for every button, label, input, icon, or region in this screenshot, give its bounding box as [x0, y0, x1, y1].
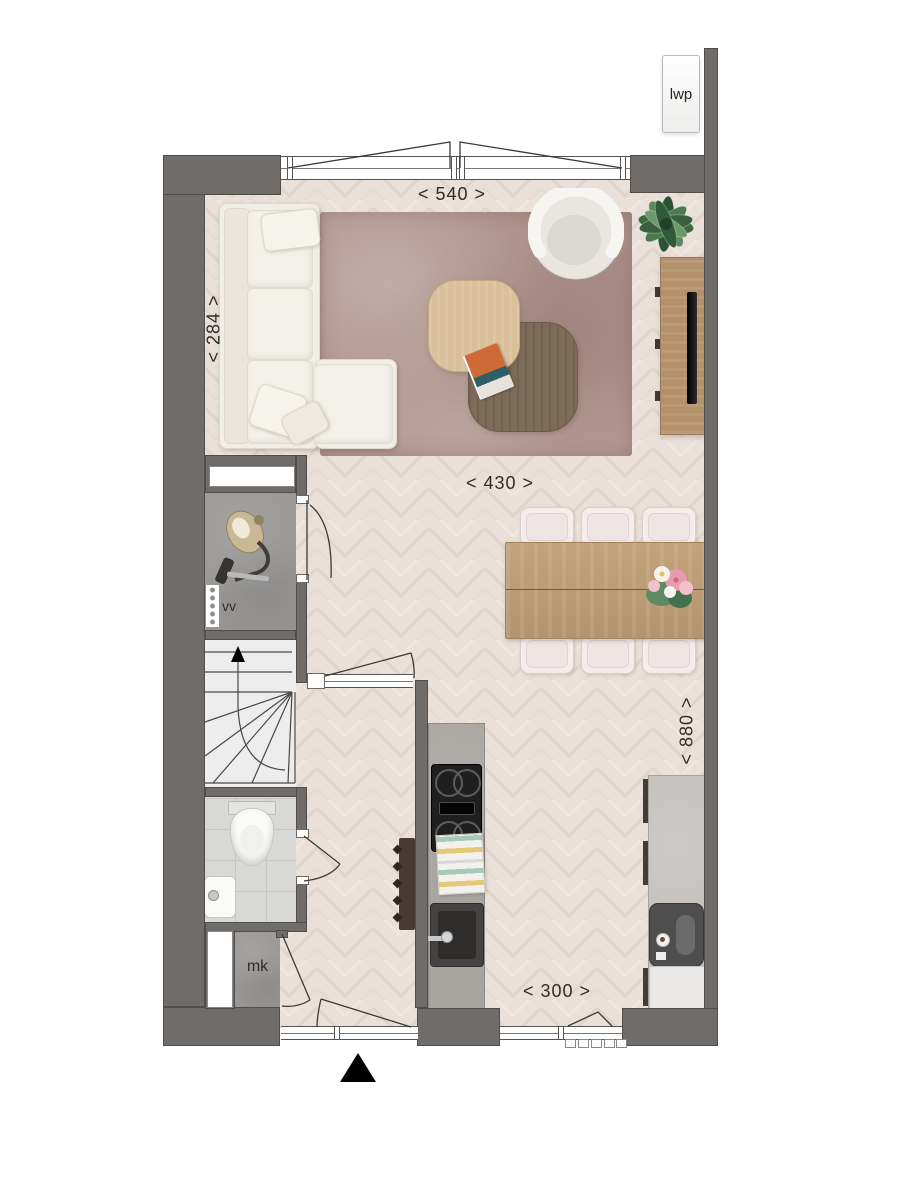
appliance-front [643, 841, 648, 885]
tv-cabinet [660, 257, 705, 435]
wall-toilet-right-upper [296, 787, 307, 834]
wall-storage-right-lower [296, 578, 307, 683]
dimension-middle: < 430 > [447, 473, 553, 494]
meter-strip-label: vv [222, 598, 236, 614]
coffee-machine-top [676, 915, 695, 955]
window-top [281, 156, 630, 180]
appliance-front [643, 968, 648, 1006]
vent-grille [591, 1039, 602, 1048]
coffee-machine-tray [656, 952, 666, 960]
wall-niche-top [209, 466, 295, 487]
wall-right [704, 48, 718, 1046]
window-bottom [500, 1026, 622, 1040]
doorway-hall-living [323, 674, 413, 688]
wall-storage-bottom [205, 630, 296, 640]
vent-grille [578, 1039, 589, 1048]
appliance-front [643, 779, 648, 823]
sofa-pillow [260, 208, 321, 253]
door-post [296, 574, 309, 583]
wall-bottom-right-pier [622, 1008, 718, 1046]
tea-towel [435, 833, 485, 895]
wall-hall-kitchen [415, 680, 428, 1008]
sofa-cushion [247, 288, 313, 360]
meter-panel [205, 584, 220, 628]
door-frame-line [323, 681, 413, 682]
stairwell-floor [205, 640, 296, 787]
dining-chair [520, 634, 574, 674]
coffee-machine [649, 903, 704, 967]
dimension-top: < 540 > [399, 184, 505, 205]
coffee-in-cup [660, 937, 665, 942]
door-post [296, 495, 309, 504]
dimension-right: < 880 > [677, 678, 698, 784]
kitchen-sink [430, 903, 484, 967]
dining-chair [581, 507, 635, 547]
sofa-chaise-cushion [313, 364, 393, 444]
wall-niche-bottom [207, 931, 233, 1008]
dining-chair [581, 634, 635, 674]
potted-plant [626, 190, 706, 262]
window-mullion [558, 1027, 564, 1039]
vent-grille [616, 1039, 627, 1048]
door-frame-line [281, 1033, 418, 1034]
wall-top-left [163, 155, 281, 195]
door-mullion [334, 1027, 340, 1039]
window-mullion [459, 157, 465, 179]
vent-grille [565, 1039, 576, 1048]
door-post [296, 876, 309, 885]
dining-chair [642, 507, 696, 547]
window-mullion [287, 157, 293, 179]
meter-cupboard-label: mk [235, 958, 280, 976]
heat-pump-unit: lwp [662, 55, 700, 133]
armchair [528, 188, 624, 282]
basin-tap [208, 890, 219, 901]
vacuum-cleaner [213, 500, 291, 592]
dimension-left: < 284 > [204, 276, 225, 382]
entrance-marker-icon [340, 1053, 376, 1082]
heat-pump-label: lwp [670, 86, 693, 103]
wall-top-right [630, 155, 705, 193]
flower-bouquet [640, 558, 698, 614]
window-mullion [451, 157, 457, 179]
dimension-bottom: < 300 > [504, 981, 610, 1002]
base-cabinet [649, 966, 707, 1010]
burner [453, 769, 481, 797]
door-post [296, 829, 309, 838]
faucet-head [441, 931, 453, 943]
vent-grille [604, 1039, 615, 1048]
cabinet-handle [655, 391, 660, 401]
wall-bottom-mid-pier [417, 1008, 500, 1046]
cabinet-handle [655, 287, 660, 297]
window-mullion [620, 157, 626, 179]
wall-left [163, 155, 205, 1007]
door-post [307, 673, 325, 689]
wall-mk-post [276, 930, 288, 938]
front-door-band [281, 1026, 418, 1040]
cabinet-handle [655, 339, 660, 349]
dining-chair [520, 507, 574, 547]
wall-toilet-top [205, 787, 307, 797]
dining-chair [642, 634, 696, 674]
tv-screen [687, 292, 697, 404]
wall-bottom-left-pier [163, 1007, 280, 1046]
floor-plan: lwp < 540 > < 284 > < 430 > < 880 > < 30… [0, 0, 900, 1200]
downdraft-extractor [439, 802, 475, 815]
